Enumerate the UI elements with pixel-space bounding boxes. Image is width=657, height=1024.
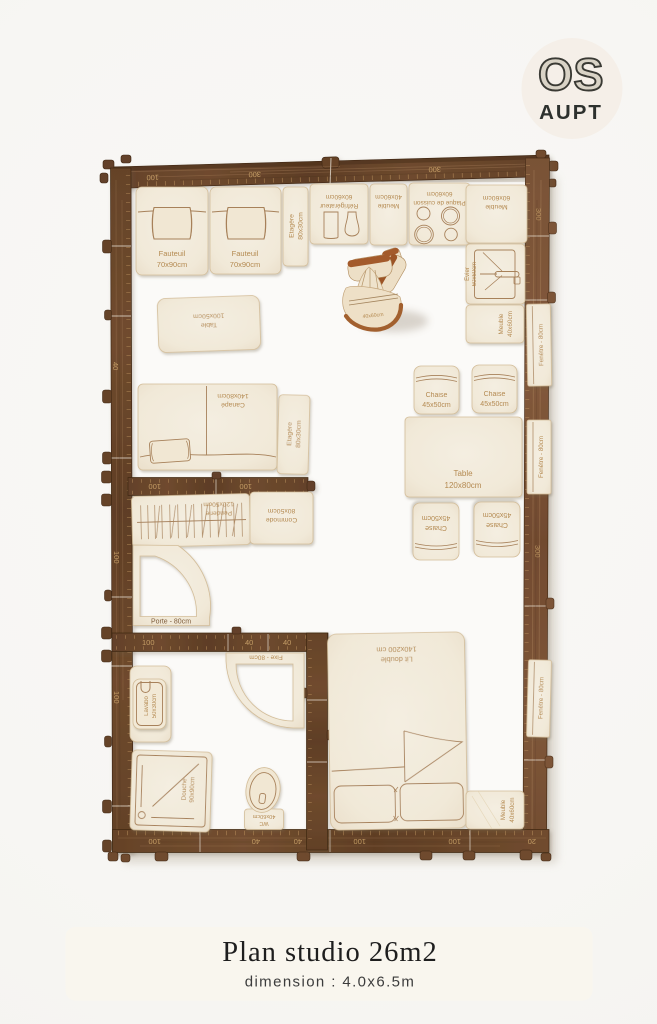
svg-text:300: 300 — [533, 545, 542, 558]
svg-text:100: 100 — [239, 482, 252, 491]
svg-text:Chaise: Chaise — [425, 524, 447, 531]
svg-text:70x90cm: 70x90cm — [230, 260, 260, 269]
svg-text:Plaque de cuisson: Plaque de cuisson — [413, 199, 466, 206]
svg-text:140x200 cm: 140x200 cm — [376, 645, 416, 655]
svg-text:50x30cm: 50x30cm — [152, 694, 158, 718]
svg-text:Table: Table — [201, 321, 218, 329]
svg-text:80x30cm: 80x30cm — [298, 212, 305, 240]
svg-text:120x80cm: 120x80cm — [445, 481, 482, 490]
svg-text:AUPT: AUPT — [539, 101, 603, 124]
svg-text:Meuble: Meuble — [498, 313, 505, 334]
svg-text:Fauteuil: Fauteuil — [159, 249, 186, 258]
svg-text:Meuble: Meuble — [485, 203, 508, 210]
svg-text:Chaise: Chaise — [484, 391, 506, 398]
svg-text:60x60cm: 60x60cm — [427, 190, 453, 197]
svg-text:40x60cm: 40x60cm — [507, 311, 514, 337]
svg-text:100: 100 — [146, 173, 159, 182]
svg-text:40: 40 — [245, 638, 253, 647]
svg-text:80x50cm: 80x50cm — [267, 507, 295, 514]
svg-text:Chaise: Chaise — [426, 392, 448, 399]
svg-text:40x60cm: 40x60cm — [509, 797, 516, 822]
svg-text:Meuble: Meuble — [377, 202, 399, 209]
svg-text:Commode: Commode — [266, 516, 298, 523]
svg-text:100: 100 — [148, 482, 161, 491]
svg-text:Réfrigérateur: Réfrigérateur — [319, 202, 358, 209]
svg-text:Fauteuil: Fauteuil — [232, 249, 259, 258]
svg-text:90x90cm: 90x90cm — [189, 777, 197, 803]
svg-text:40x60cm: 40x60cm — [252, 813, 275, 819]
svg-text:OS: OS — [538, 49, 604, 100]
svg-text:Lit double: Lit double — [381, 655, 413, 665]
svg-text:140x80cm: 140x80cm — [217, 392, 249, 399]
svg-text:Plan studio 26m2: Plan studio 26m2 — [222, 937, 438, 968]
svg-text:Lavabo: Lavabo — [144, 695, 150, 715]
svg-text:45x50cm: 45x50cm — [422, 402, 451, 409]
svg-text:Chaise: Chaise — [486, 521, 508, 528]
svg-text:60x60cm: 60x60cm — [472, 262, 478, 286]
svg-text:60x60cm: 60x60cm — [325, 193, 352, 200]
svg-text:70x90cm: 70x90cm — [157, 260, 187, 269]
svg-text:Fenêtre - 80cm: Fenêtre - 80cm — [538, 324, 546, 366]
svg-text:60x60cm: 60x60cm — [482, 194, 510, 201]
svg-text:40x60cm: 40x60cm — [375, 193, 402, 200]
svg-text:Douche: Douche — [181, 778, 189, 801]
svg-text:Etagère: Etagère — [286, 422, 294, 446]
svg-text:100x50cm: 100x50cm — [193, 311, 225, 319]
svg-text:40: 40 — [111, 362, 120, 370]
svg-text:Table: Table — [453, 469, 473, 478]
svg-text:40: 40 — [283, 638, 291, 647]
svg-text:WC: WC — [259, 820, 268, 826]
svg-text:Fixe - 80cm: Fixe - 80cm — [249, 654, 282, 661]
svg-text:dimension : 4.0x6.5m: dimension : 4.0x6.5m — [245, 974, 416, 991]
svg-text:80x30cm: 80x30cm — [295, 420, 303, 448]
svg-text:Meuble: Meuble — [500, 799, 507, 820]
svg-text:Etagère: Etagère — [289, 214, 296, 238]
svg-text:300: 300 — [534, 208, 543, 221]
svg-text:Fenêtre - 80cm: Fenêtre - 80cm — [538, 436, 545, 478]
svg-text:45x50cm: 45x50cm — [480, 401, 509, 408]
svg-text:Porte - 80cm: Porte - 80cm — [151, 619, 191, 626]
svg-text:Penderie: Penderie — [205, 509, 232, 517]
svg-text:100: 100 — [142, 638, 155, 647]
svg-text:45x50cm: 45x50cm — [483, 511, 512, 518]
svg-text:120x50cm: 120x50cm — [203, 500, 234, 508]
svg-text:45x50cm: 45x50cm — [422, 514, 451, 521]
svg-text:Évier: Évier — [464, 267, 471, 281]
svg-text:Fenêtre - 80cm: Fenêtre - 80cm — [537, 677, 545, 719]
svg-text:Canapé: Canapé — [221, 401, 245, 408]
